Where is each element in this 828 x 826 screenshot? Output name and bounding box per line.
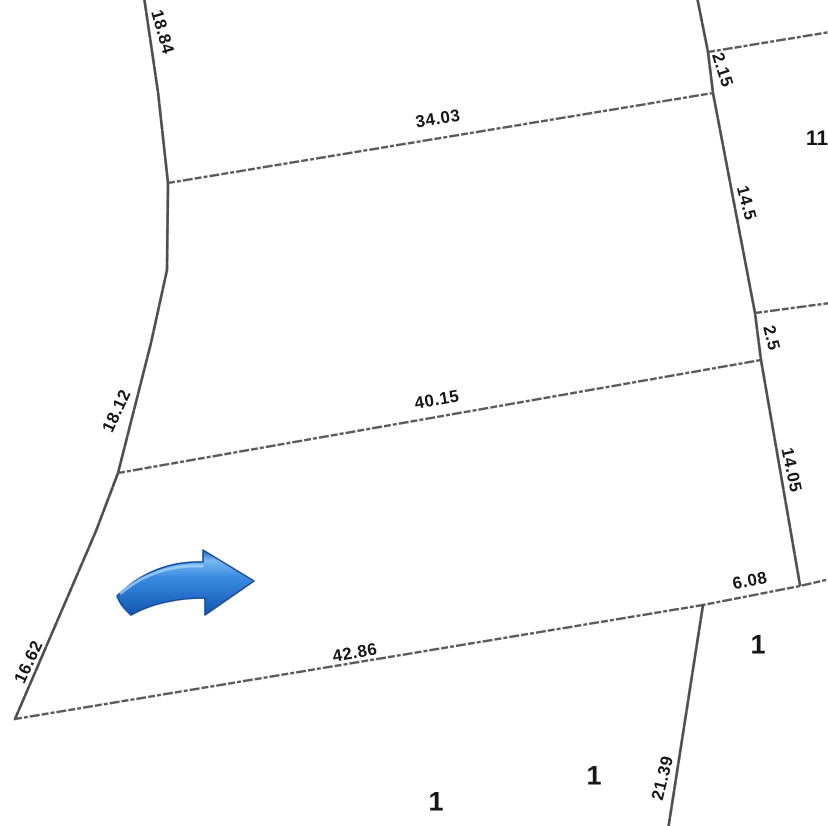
division-line-40-15 xyxy=(118,360,761,473)
boundary-east-main xyxy=(697,0,800,585)
division-line-34-03 xyxy=(168,93,713,183)
parcel-number-1-middle: 1 xyxy=(586,761,601,792)
boundary-line-21-39 xyxy=(668,605,703,826)
boundary-west-middle-18-12 xyxy=(118,183,168,473)
direction-arrow-icon xyxy=(117,550,254,615)
branch-line-east xyxy=(755,303,828,313)
parcel-number-11: 11 xyxy=(806,127,828,151)
cadastral-survey-plan: 18.84 34.03 2.15 14.5 2.5 40.15 18.12 14… xyxy=(0,0,828,826)
parcel-number-1-east: 1 xyxy=(750,630,765,661)
parcel-number-1-bottom: 1 xyxy=(428,787,443,818)
